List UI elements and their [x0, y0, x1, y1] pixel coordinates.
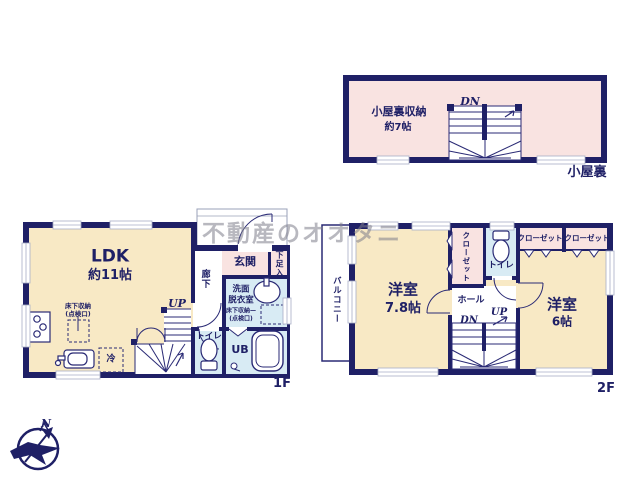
toilet2f-icon: [493, 231, 509, 262]
shoe-storage-label: 下足入: [274, 251, 284, 278]
room-a-size: 7.8帖: [385, 301, 421, 317]
closet-side-label: クローゼット: [461, 232, 470, 283]
attic-stairs-dn-label: DN: [460, 95, 480, 109]
toilet1f-label: トイレ: [196, 332, 222, 343]
genkan-label: 玄関: [234, 255, 256, 269]
room-a-label: 洋室: [388, 281, 418, 300]
second-floor-label: 2F: [597, 381, 615, 397]
fridge-label: 冷: [106, 354, 115, 365]
attic-storage-label: 小屋裏収納: [372, 105, 427, 119]
washroom-line2: 脱衣室: [228, 295, 254, 306]
stairs2f-up-label: UP: [491, 307, 507, 320]
washroom-storage-line1: 床下収納—: [226, 308, 256, 316]
ldk-label: LDK: [91, 246, 129, 267]
ldk-floor-storage-label: 床下収納 (点検口): [65, 302, 91, 318]
floorplan-page: 不動産のオオタニ 小屋裏収納 約7帖 DN 小屋裏 LDK 約11帖 床下収納 …: [0, 0, 640, 480]
bath-label: UB: [231, 343, 248, 357]
toilet2f-label: トイレ: [488, 261, 514, 272]
ldk-size-label: 約11帖: [88, 268, 132, 284]
closet-top-right-label: クローゼット: [565, 233, 610, 242]
compass-icon: [10, 423, 60, 469]
attic-floor-label: 小屋裏: [567, 165, 606, 181]
attic-storage-size: 約7帖: [385, 122, 412, 135]
kitchen-stove-icon: [29, 312, 50, 342]
ldk-floor-storage-line2: (点検口): [65, 310, 90, 318]
washroom-storage-line2: (点検口): [229, 315, 253, 323]
first-floor-label: 1F: [273, 376, 291, 392]
compass-north-label: N: [41, 417, 51, 431]
room-b-size: 6帖: [552, 315, 572, 330]
balcony-label: バルコニー: [331, 276, 342, 324]
watermark: 不動産のオオタニ: [202, 214, 402, 248]
corridor-area: [193, 251, 223, 329]
corridor-label: 廊下: [198, 269, 209, 289]
hall-label: ホール: [457, 295, 484, 306]
attic-stairs: [447, 104, 522, 160]
ldk-floor-storage-line1: 床下収納: [65, 302, 91, 310]
washroom-storage-label: 床下収納— (点検口): [226, 308, 256, 323]
stairs1f-up-label: UP: [168, 297, 186, 311]
stairs2f-dn-label: DN: [460, 315, 478, 328]
room-b-label: 洋室: [547, 296, 577, 315]
toilet1f-icon: [201, 339, 217, 370]
washroom-line1: 洗面: [232, 284, 249, 295]
washroom-label: 洗面 脱衣室: [228, 284, 254, 305]
closet-top-left-label: クローゼット: [518, 233, 563, 242]
